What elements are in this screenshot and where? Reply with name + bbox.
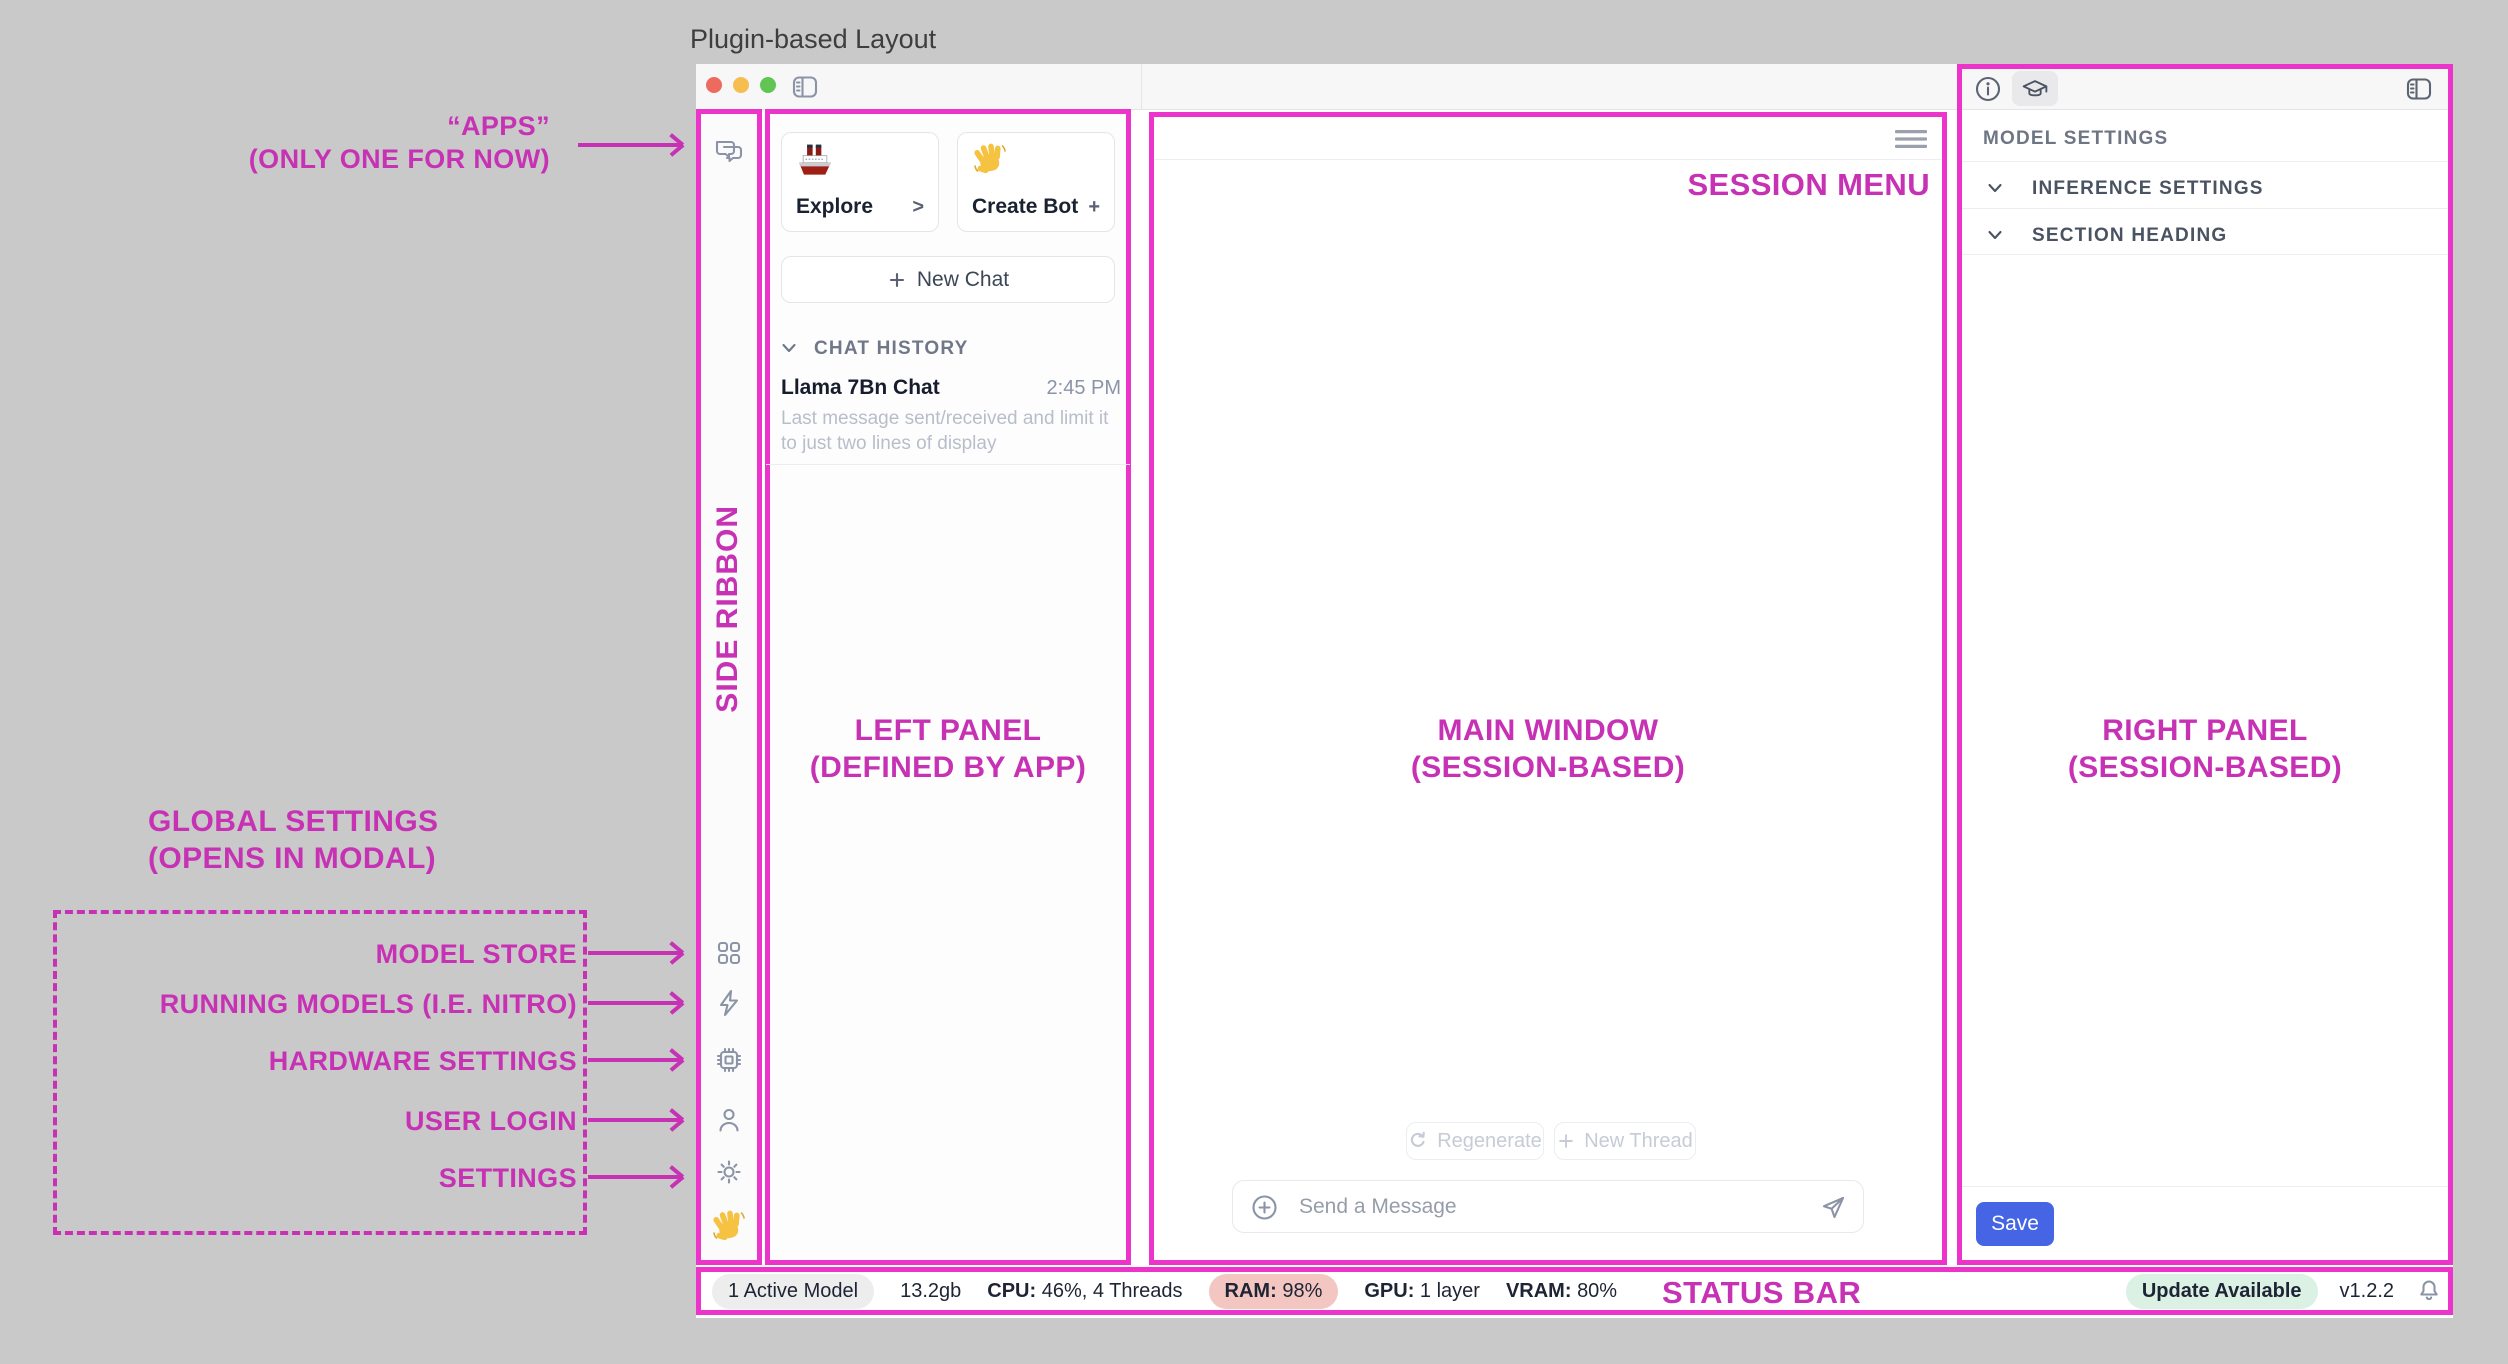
chevron-down-icon[interactable]: [1985, 225, 2005, 245]
new-thread-button[interactable]: New Thread: [1554, 1122, 1696, 1160]
annotation-arrow-user-login: [588, 1118, 682, 1122]
chevron-down-icon[interactable]: [779, 338, 799, 358]
mockup-canvas: Plugin-based Layout: [0, 0, 2508, 1364]
chevron-down-icon[interactable]: [1985, 178, 2005, 198]
chat-history-item[interactable]: Llama 7Bn Chat 2:45 PM Last message sent…: [765, 368, 1131, 464]
annotation-global-settings: GLOBAL SETTINGS (OPENS IN MODAL): [148, 803, 438, 877]
annotation-arrow-model-store: [588, 951, 682, 955]
graduation-cap-icon: [2021, 75, 2049, 103]
annotation-arrow-hardware-settings: [588, 1058, 682, 1062]
main-window: [1149, 112, 1947, 1265]
annotation-arrow-apps: [578, 143, 682, 147]
right-divider: [1962, 254, 2448, 255]
create-bot-card-label: Create Bot: [972, 195, 1078, 219]
page-title: Plugin-based Layout: [690, 24, 936, 55]
right-footer-divider: [1962, 1186, 2448, 1187]
annotation-model-store: MODEL STORE: [376, 938, 577, 971]
chat-list-divider: [766, 464, 1130, 465]
toggle-left-sidebar-icon[interactable]: [790, 72, 820, 102]
titlebar-divider: [1141, 64, 1142, 110]
app-version: v1.2.2: [2340, 1280, 2394, 1303]
annotation-arrow-settings: [588, 1175, 682, 1179]
regenerate-label: Regenerate: [1437, 1130, 1542, 1153]
wave-emoji[interactable]: [709, 1208, 749, 1248]
status-bar-left: 1 Active Model 13.2gb CPU: 46%, 4 Thread…: [712, 1272, 1617, 1310]
gpu-usage: GPU: 1 layer: [1364, 1280, 1480, 1303]
ship-emoji: [796, 143, 834, 181]
regenerate-button[interactable]: Regenerate: [1406, 1122, 1544, 1160]
ram-usage-badge[interactable]: RAM: 98%: [1209, 1274, 1339, 1309]
main-header-divider: [1155, 159, 1941, 160]
new-thread-label: New Thread: [1584, 1130, 1693, 1153]
running-models-icon[interactable]: [714, 988, 744, 1018]
annotation-left-panel: LEFT PANEL (DEFINED BY APP): [765, 712, 1131, 786]
chat-preview: Last message sent/received and limit it …: [781, 406, 1123, 456]
refresh-icon: [1408, 1131, 1428, 1151]
annotation-status-bar: STATUS BAR: [1662, 1276, 1861, 1310]
annotation-session-menu: SESSION MENU: [1687, 168, 1930, 202]
chat-history-header[interactable]: CHAT HISTORY: [814, 338, 968, 360]
explore-card-accessory: >: [912, 196, 924, 219]
explore-card-label: Explore: [796, 195, 873, 219]
traffic-light-close[interactable]: [706, 77, 722, 93]
vram-usage: VRAM: 80%: [1506, 1280, 1617, 1303]
info-icon[interactable]: [1974, 75, 2002, 103]
annotation-arrow-running-models: [588, 1001, 682, 1005]
annotation-side-ribbon: SIDE RIBBON: [711, 505, 745, 713]
section-heading-section[interactable]: SECTION HEADING: [2032, 225, 2227, 247]
chat-time: 2:45 PM: [1047, 377, 1121, 400]
assistant-tab-selected[interactable]: [2012, 71, 2058, 106]
annotation-user-login: USER LOGIN: [405, 1105, 577, 1138]
message-composer[interactable]: [1232, 1180, 1864, 1233]
annotation-settings: SETTINGS: [439, 1162, 577, 1195]
memory-usage: 13.2gb: [900, 1280, 961, 1303]
explore-card[interactable]: Explore >: [781, 132, 939, 232]
new-chat-label: New Chat: [917, 268, 1009, 292]
message-input[interactable]: [1299, 1181, 1799, 1232]
chat-title: Llama 7Bn Chat: [781, 376, 940, 400]
annotation-main-window: MAIN WINDOW (SESSION-BASED): [1149, 712, 1947, 786]
create-bot-card[interactable]: Create Bot +: [957, 132, 1115, 232]
update-available-badge[interactable]: Update Available: [2126, 1274, 2318, 1309]
wave-emoji: [970, 141, 1010, 181]
settings-gear-icon[interactable]: [714, 1157, 744, 1187]
active-models-badge[interactable]: 1 Active Model: [712, 1274, 874, 1309]
annotation-apps: “APPS” (ONLY ONE FOR NOW): [249, 110, 550, 176]
chat-app-icon[interactable]: [712, 134, 746, 168]
model-store-icon[interactable]: [714, 938, 744, 968]
right-divider: [1962, 161, 2448, 162]
model-settings-header: MODEL SETTINGS: [1983, 128, 2168, 150]
status-bar-right: Update Available v1.2.2: [2126, 1272, 2442, 1310]
plus-icon: [1557, 1132, 1575, 1150]
toggle-right-sidebar-icon[interactable]: [2404, 74, 2434, 104]
new-chat-button[interactable]: New Chat: [781, 256, 1115, 303]
attach-plus-icon[interactable]: [1251, 1194, 1278, 1221]
annotation-running-models: RUNNING MODELS (I.E. NITRO): [160, 988, 577, 1021]
session-menu-icon[interactable]: [1893, 125, 1929, 153]
plus-icon: [887, 270, 907, 290]
create-bot-card-accessory: +: [1088, 196, 1100, 219]
send-icon[interactable]: [1820, 1194, 1847, 1221]
traffic-light-zoom[interactable]: [760, 77, 776, 93]
cpu-usage: CPU: 46%, 4 Threads: [987, 1280, 1182, 1303]
hardware-settings-icon[interactable]: [714, 1045, 744, 1075]
save-button[interactable]: Save: [1976, 1202, 2054, 1246]
user-login-icon[interactable]: [714, 1105, 744, 1135]
right-divider: [1962, 208, 2448, 209]
annotation-right-panel: RIGHT PANEL (SESSION-BASED): [1957, 712, 2453, 786]
notifications-bell-icon[interactable]: [2416, 1278, 2442, 1304]
inference-settings-section[interactable]: INFERENCE SETTINGS: [2032, 178, 2264, 200]
traffic-light-minimize[interactable]: [733, 77, 749, 93]
annotation-hardware-settings: HARDWARE SETTINGS: [269, 1045, 577, 1078]
